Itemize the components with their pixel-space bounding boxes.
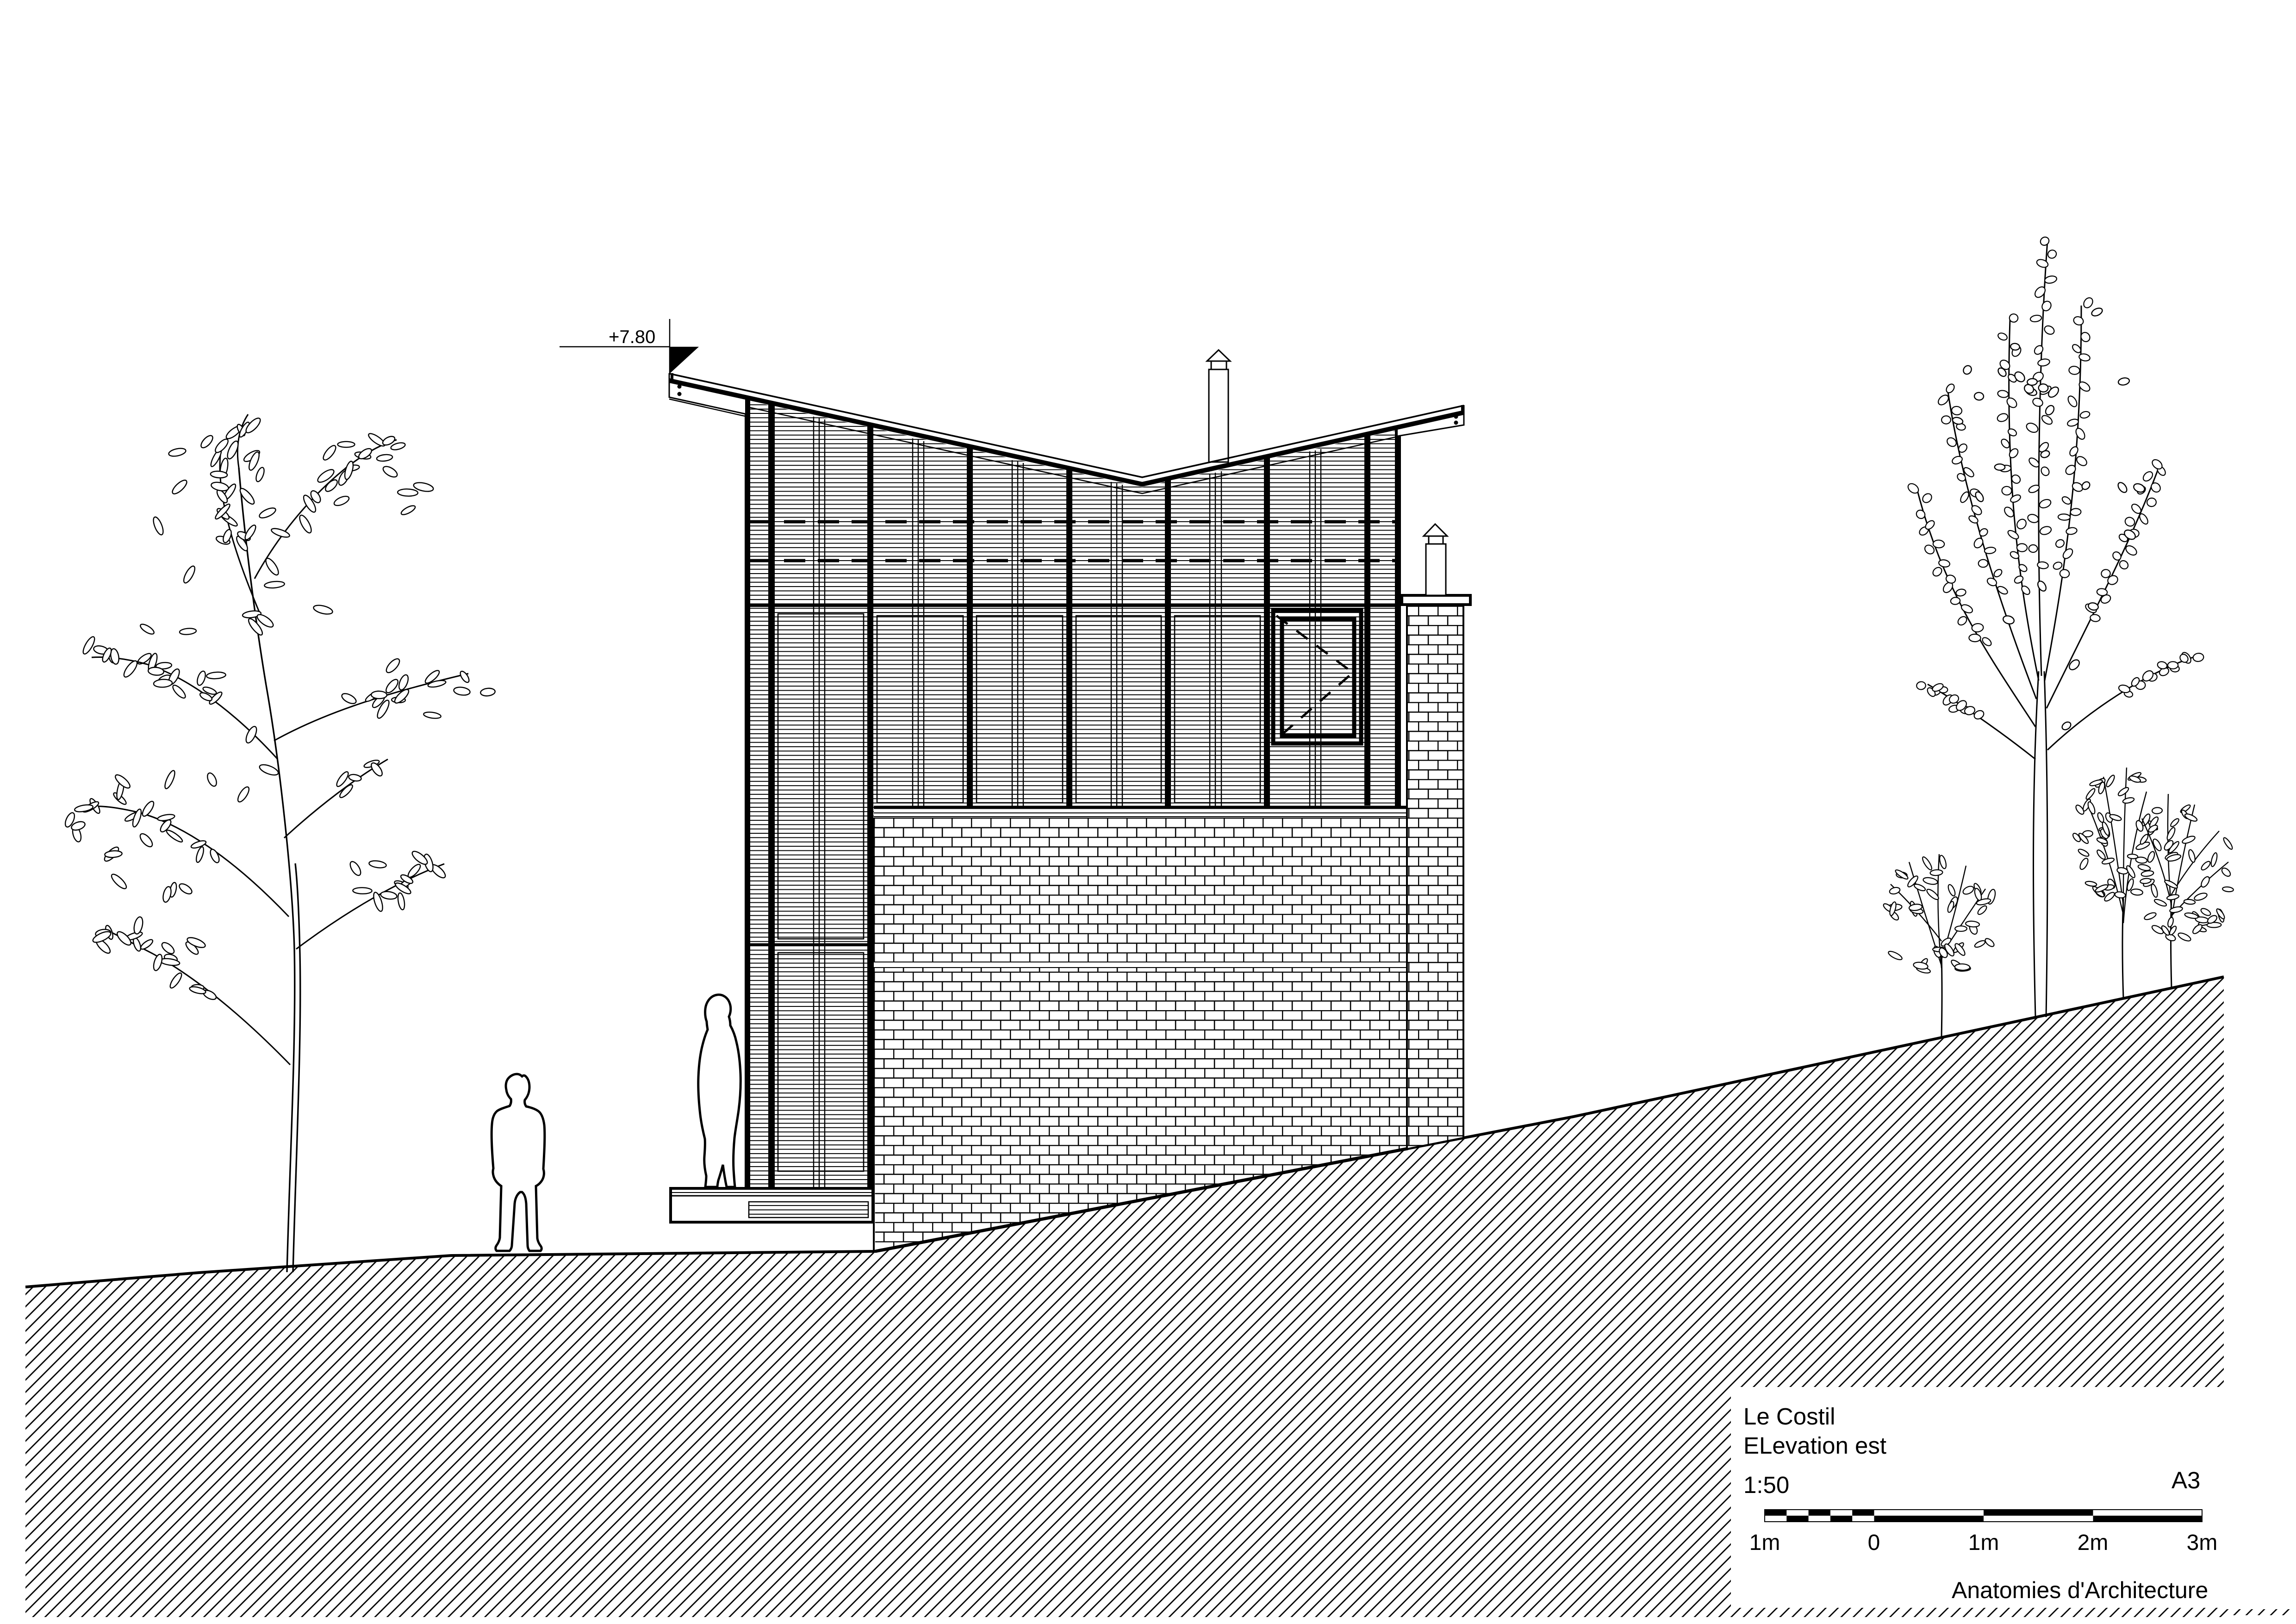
- svg-text:+7.80: +7.80: [609, 327, 655, 347]
- svg-text:Le Costil: Le Costil: [1743, 1403, 1835, 1430]
- svg-text:0: 0: [1868, 1530, 1880, 1555]
- svg-text:A3: A3: [2172, 1467, 2200, 1493]
- svg-text:1:50: 1:50: [1743, 1472, 1789, 1498]
- svg-text:1m: 1m: [1749, 1530, 1780, 1555]
- svg-text:2m: 2m: [2078, 1530, 2109, 1555]
- svg-text:1m: 1m: [1968, 1530, 1999, 1555]
- svg-text:ELevation est: ELevation est: [1743, 1432, 1886, 1459]
- svg-text:3m: 3m: [2187, 1530, 2218, 1555]
- svg-text:Anatomies d'Architecture: Anatomies d'Architecture: [1952, 1577, 2208, 1603]
